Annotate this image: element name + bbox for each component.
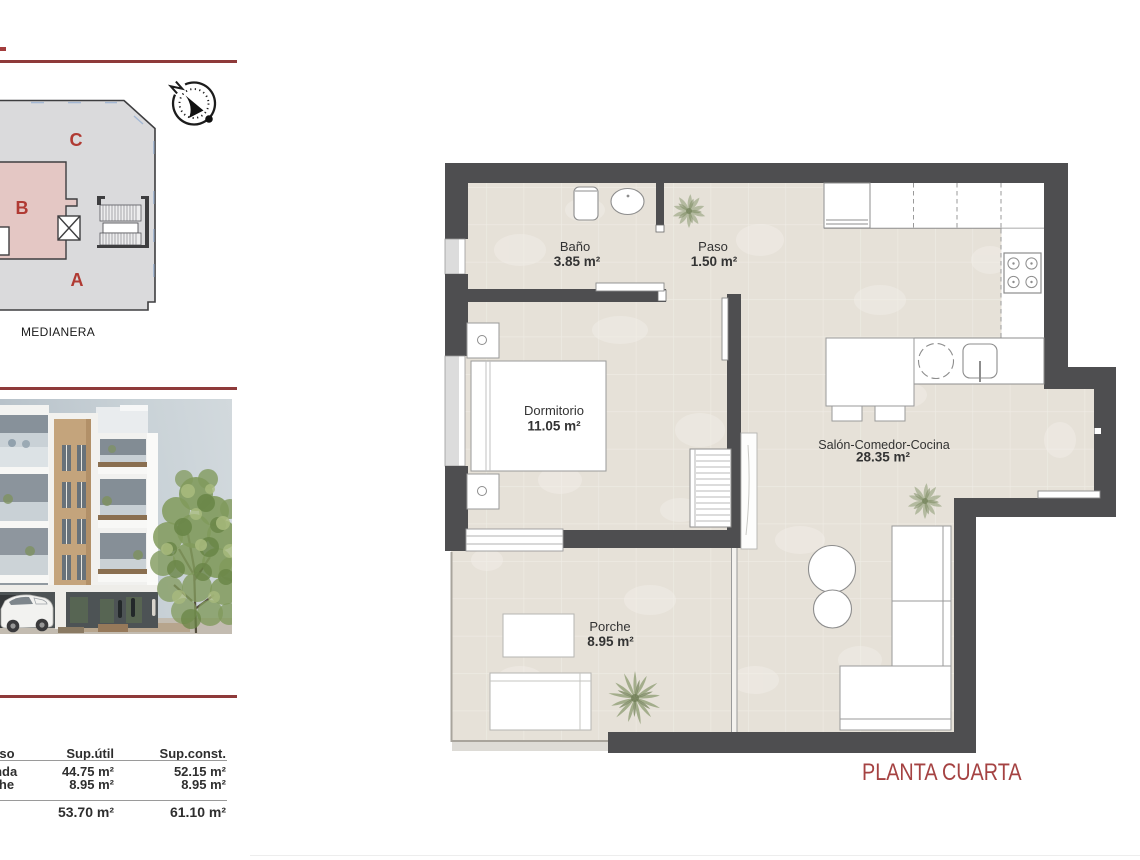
svg-text:3.85 m²: 3.85 m² <box>554 254 601 269</box>
svg-text:Paso: Paso <box>698 239 728 254</box>
svg-text:Porche: Porche <box>589 619 630 634</box>
svg-text:C: C <box>70 130 83 150</box>
svg-text:1.50 m²: 1.50 m² <box>691 254 738 269</box>
svg-text:Baño: Baño <box>560 239 590 254</box>
svg-text:A: A <box>71 270 84 290</box>
svg-text:28.35 m²: 28.35 m² <box>856 450 911 465</box>
svg-text:Dormitorio: Dormitorio <box>524 403 584 418</box>
svg-text:B: B <box>16 198 29 218</box>
svg-text:11.05 m²: 11.05 m² <box>527 419 581 434</box>
svg-text:8.95 m²: 8.95 m² <box>587 634 634 649</box>
